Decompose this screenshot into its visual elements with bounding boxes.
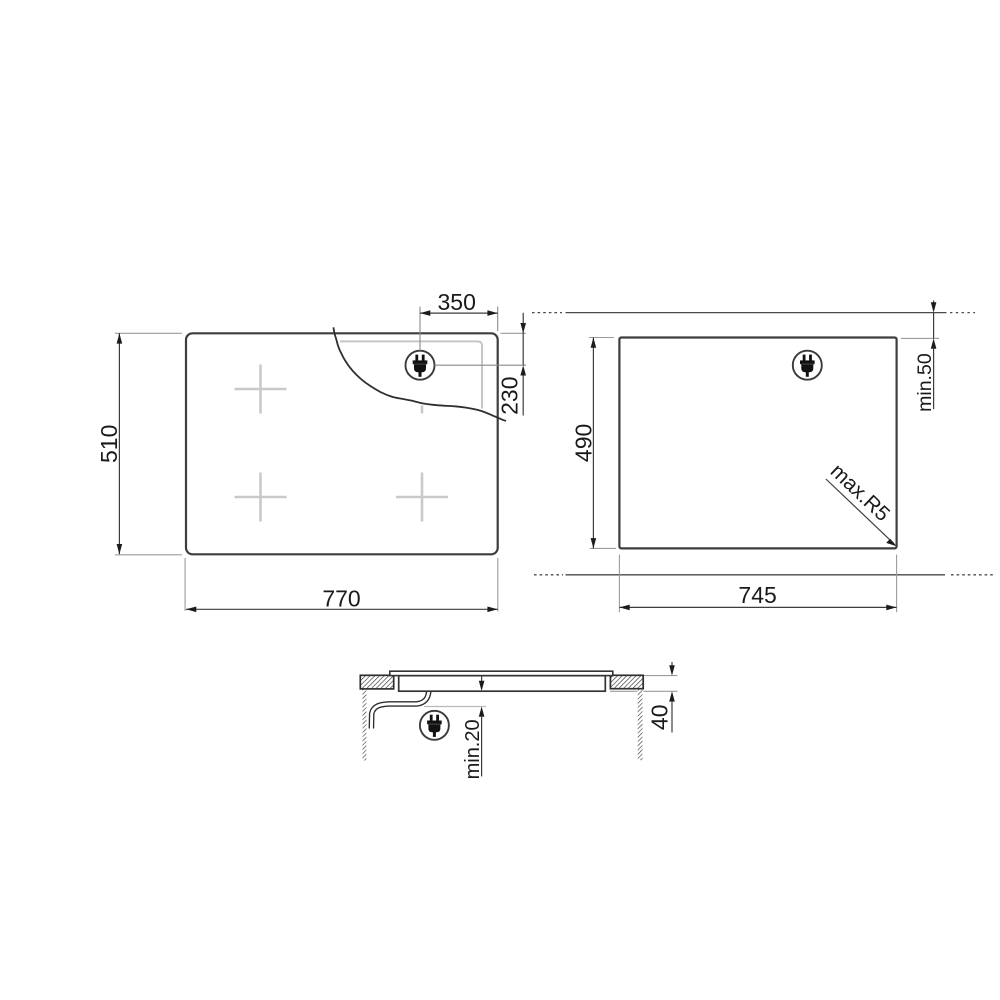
svg-text:745: 745 [738, 582, 776, 608]
svg-text:490: 490 [570, 424, 596, 462]
svg-text:350: 350 [438, 289, 476, 315]
svg-text:min.50: min.50 [914, 353, 936, 412]
svg-text:40: 40 [646, 705, 672, 731]
svg-text:770: 770 [322, 585, 360, 611]
svg-text:230: 230 [496, 377, 522, 415]
svg-text:min.20: min.20 [462, 719, 484, 779]
svg-text:510: 510 [96, 425, 122, 463]
